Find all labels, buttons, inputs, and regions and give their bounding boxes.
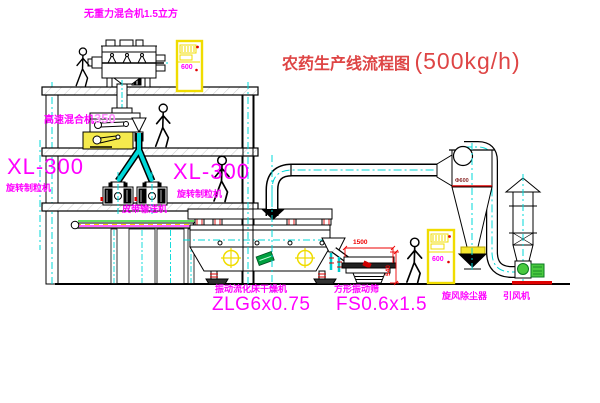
cabinet-right-text: 600 (432, 256, 444, 263)
label-fan: 引风机 (503, 292, 530, 301)
label-cyclone: 旋风除尘器 (442, 292, 487, 301)
person-top-floor (76, 48, 89, 86)
label-belt-conveyor: 皮带输送机 (122, 205, 167, 214)
dim-screen-length: 1500 (353, 240, 367, 247)
dim-screen-height: 540 (386, 265, 393, 276)
diagram-title: 农药生产线流程图 (500kg/h) (282, 48, 521, 75)
induced-draft-fan (512, 261, 552, 285)
label-granulator-right-name: 旋转制粒机 (177, 190, 222, 199)
label-high-speed-mixer: 高速混合机350 (44, 111, 116, 127)
cabinet-top-text: 600 (181, 64, 193, 71)
dim-cyclone-diameter: Φ600 (455, 179, 469, 185)
label-granulator-right-model: XL-300 (173, 161, 250, 183)
granulator-left (101, 182, 134, 205)
label-granulator-left-name: 旋转制粒机 (6, 184, 51, 193)
granulator-right (135, 182, 168, 205)
gravity-free-mixer (88, 40, 168, 116)
person-ground (407, 238, 422, 282)
diagram-canvas: 农药生产线流程图 (500kg/h) 无重力混合机1.5立方 高速混合机350 … (0, 0, 600, 403)
label-dryer-model: ZLG6x0.75 (212, 295, 311, 314)
label-high-speed-mixer-size: 350 (94, 111, 116, 126)
person-second-floor (156, 104, 170, 147)
label-screen-model: FS0.6x1.5 (336, 295, 427, 314)
label-high-speed-mixer-name: 高速混合机 (44, 115, 94, 126)
title-text: 农药生产线流程图 (282, 56, 410, 73)
fluid-bed-dryer (183, 209, 337, 284)
label-granulator-left-model: XL-300 (7, 156, 84, 178)
title-capacity: (500kg/h) (414, 48, 520, 74)
label-gravity-mixer: 无重力混合机1.5立方 (84, 10, 178, 20)
label-screen-name: 方形振动筛 (334, 285, 379, 294)
label-dryer-name: 振动流化床干燥机 (215, 285, 287, 294)
belt-conveyor (71, 221, 201, 284)
